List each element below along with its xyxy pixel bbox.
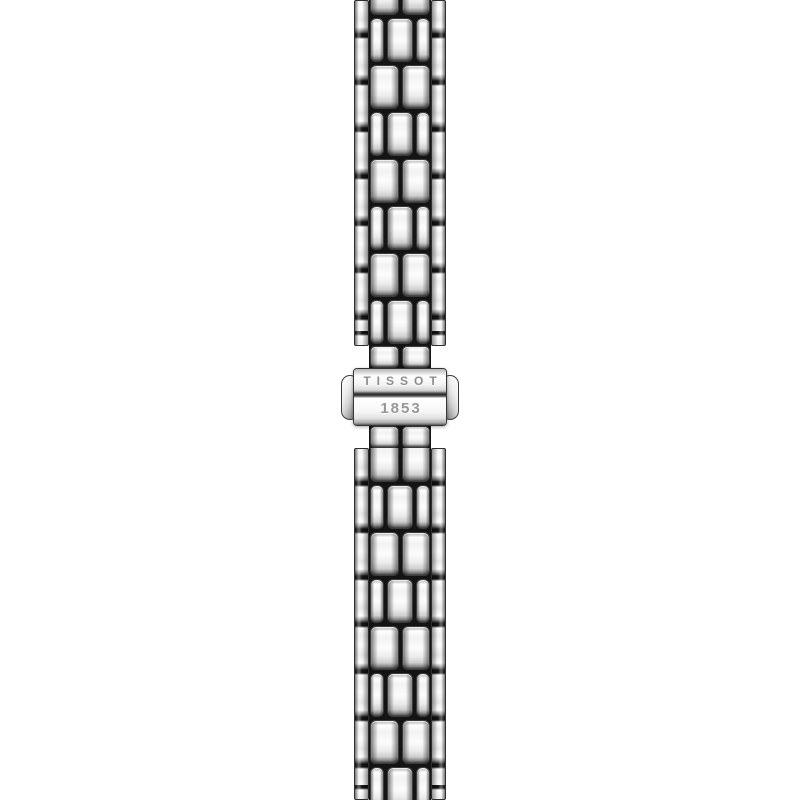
bracelet-link <box>387 579 413 623</box>
bracelet-link <box>370 426 399 448</box>
bracelet-edge-links-right <box>431 448 446 800</box>
bracelet-link <box>416 300 430 344</box>
bracelet-link <box>387 206 413 250</box>
bracelet-link <box>370 767 384 800</box>
bracelet-link-row <box>369 253 431 297</box>
bracelet-link <box>402 720 431 764</box>
bracelet-link <box>370 532 399 576</box>
bracelet-link <box>416 485 430 529</box>
bracelet-link-row <box>369 448 431 482</box>
bracelet-link <box>387 673 413 717</box>
bracelet-link <box>370 346 399 368</box>
bracelet-link <box>416 112 430 156</box>
bracelet-link <box>370 0 399 15</box>
bracelet-link <box>387 767 413 800</box>
bracelet-link <box>402 448 431 482</box>
bracelet-link <box>387 485 413 529</box>
bracelet-link <box>416 673 430 717</box>
bracelet-lower-links <box>369 448 431 800</box>
bracelet-link <box>370 448 399 482</box>
clasp-body: TISSOT 1853 <box>353 368 447 426</box>
bracelet-link <box>387 18 413 62</box>
bracelet-edge-links-right <box>431 0 446 346</box>
brand-engraving: TISSOT <box>363 374 442 388</box>
bracelet-link <box>402 346 431 368</box>
bracelet-link <box>402 532 431 576</box>
bracelet-edge-links-left <box>354 0 369 346</box>
bracelet-link-row <box>369 485 431 529</box>
bracelet-link <box>370 18 384 62</box>
clasp: TISSOT 1853 <box>341 368 459 426</box>
bracelet-link-row <box>369 300 431 344</box>
bracelet-link <box>402 253 431 297</box>
bracelet-link-row <box>369 626 431 670</box>
product-photo: TISSOT 1853 <box>0 0 800 800</box>
bracelet-link <box>387 300 413 344</box>
bracelet-link <box>370 65 399 109</box>
bracelet-link <box>370 112 384 156</box>
bracelet-link <box>402 65 431 109</box>
bracelet-link <box>370 720 399 764</box>
bracelet-link <box>370 485 384 529</box>
bracelet-link <box>370 673 384 717</box>
bracelet-link-row <box>369 532 431 576</box>
clasp-upper-band: TISSOT <box>354 369 446 392</box>
bracelet-link <box>387 112 413 156</box>
bracelet-link-row <box>369 65 431 109</box>
bracelet-upper-strap <box>354 0 446 346</box>
bracelet-link <box>416 579 430 623</box>
bracelet-link-row <box>369 18 431 62</box>
bracelet-link-row <box>369 720 431 764</box>
bracelet-link-row <box>369 206 431 250</box>
clasp-lower-band: 1853 <box>354 398 446 425</box>
bracelet-link-row <box>369 767 431 800</box>
bracelet-link-row <box>369 673 431 717</box>
bracelet-link <box>402 426 431 448</box>
bracelet-link <box>416 206 430 250</box>
bracelet-link-row <box>369 159 431 203</box>
bracelet-link <box>370 626 399 670</box>
bracelet-link <box>402 0 431 15</box>
bracelet-link <box>402 159 431 203</box>
bracelet-upper-links <box>369 0 431 346</box>
bracelet-link <box>416 767 430 800</box>
bracelet-link-row <box>369 579 431 623</box>
bracelet-link-row <box>369 112 431 156</box>
bracelet-link <box>416 18 430 62</box>
bracelet-link <box>370 253 399 297</box>
bracelet-link <box>370 579 384 623</box>
bracelet-link <box>370 159 399 203</box>
year-engraving: 1853 <box>380 400 421 417</box>
bracelet-link <box>370 300 384 344</box>
bracelet-edge-links-left <box>354 448 369 800</box>
bracelet-link-row <box>369 0 431 15</box>
bracelet-link <box>370 206 384 250</box>
bracelet-lower-strap <box>354 448 446 800</box>
clasp-connector-top <box>369 346 431 368</box>
bracelet-link <box>402 626 431 670</box>
clasp-connector-bottom <box>369 426 431 448</box>
